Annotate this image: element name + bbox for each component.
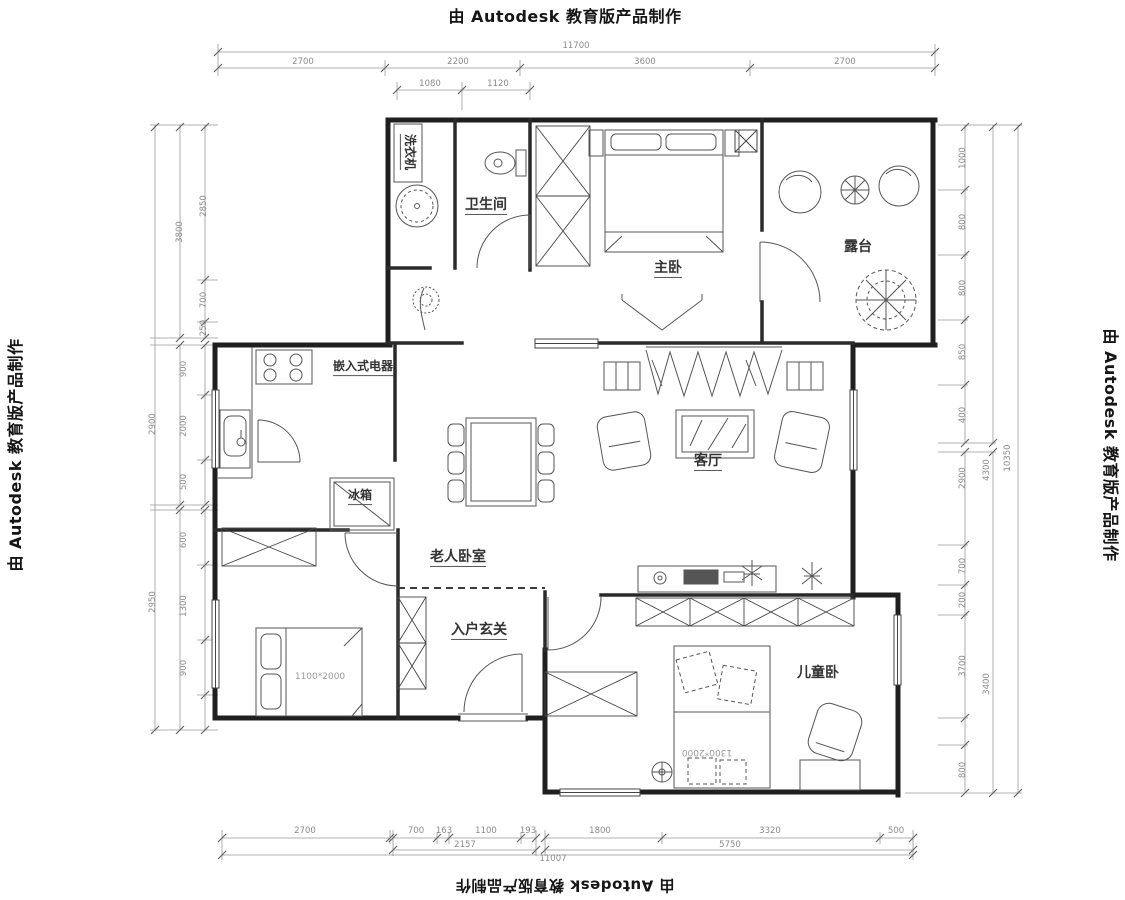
dim-label: 5750 — [719, 840, 741, 850]
living-room-furniture — [448, 347, 831, 592]
dim-label: 250 — [199, 320, 209, 336]
dining-chair — [538, 480, 554, 502]
room-label-fridge: 冰箱 — [348, 489, 372, 505]
floorplan-drawing — [0, 0, 1125, 900]
dim-label: 1000 — [958, 147, 968, 169]
coffee-table — [676, 410, 754, 458]
dim-label: 700 — [958, 558, 968, 574]
bay-mark — [622, 294, 702, 330]
dim-label: 3800 — [175, 221, 185, 243]
armchair — [596, 410, 653, 472]
dim-label: 2900 — [148, 413, 158, 435]
room-label-washer: 洗衣机 — [400, 134, 416, 170]
room-label-terrace: 露台 — [844, 239, 872, 255]
dim-label: 2850 — [199, 195, 209, 217]
dining-chair — [448, 480, 464, 502]
dim-label: 2700 — [834, 57, 856, 67]
nightstand — [589, 130, 603, 156]
round-chair — [779, 171, 821, 213]
room-label-entry: 入户玄关 — [451, 622, 507, 640]
watermark-bottom: 由 Autodesk 教育版产品制作 — [455, 876, 674, 897]
room-label-bathroom: 卫生间 — [465, 197, 507, 215]
plant-icon — [413, 287, 439, 313]
dim-label: 1800 — [589, 826, 611, 836]
room-label-living: 客厅 — [694, 453, 722, 471]
dining-chair — [538, 424, 554, 446]
watermark-top: 由 Autodesk 教育版产品制作 — [448, 3, 681, 27]
watermark-right: 由 Autodesk 教育版产品制作 — [1100, 328, 1124, 561]
dim-label: 4300 — [982, 459, 992, 481]
dim-label: 193 — [520, 826, 536, 836]
pillow — [717, 665, 756, 704]
dim-label: 700 — [199, 292, 209, 308]
room-label-appliance: 嵌入式电器 — [333, 360, 393, 376]
dim-label: 10350 — [1003, 444, 1013, 471]
master-bed — [605, 130, 723, 252]
stove-icon — [256, 350, 312, 384]
dim-label: 400 — [958, 407, 968, 423]
armchair — [773, 410, 832, 475]
dim-label: 3400 — [982, 673, 992, 695]
dim-label: 600 — [179, 532, 189, 548]
dining-chair — [538, 452, 554, 474]
dim-label: 2157 — [454, 840, 476, 850]
pillow — [676, 651, 718, 693]
dining-chair — [448, 452, 464, 474]
dim-label: 1300 — [179, 595, 189, 617]
kids-bed-size-label: 1300*2000 — [682, 747, 732, 757]
dim-label: 2900 — [958, 467, 968, 489]
dining-table — [466, 418, 536, 506]
dim-label: 163 — [436, 826, 452, 836]
dim-label: 2700 — [292, 57, 314, 67]
sofa-drapery — [646, 350, 782, 396]
doors — [345, 215, 820, 721]
dim-label: 900 — [179, 361, 189, 377]
dim-label: 850 — [958, 344, 968, 360]
dim-label: 800 — [958, 214, 968, 230]
dim-label: 1100 — [475, 826, 497, 836]
dim-layer — [150, 44, 1022, 860]
dim-label: 900 — [179, 660, 189, 676]
side-table — [604, 362, 640, 390]
toilet-icon — [485, 152, 515, 174]
elder-bed-size-label: 1100*2000 — [295, 672, 345, 682]
dim-label: 2700 — [294, 826, 316, 836]
master-bedroom-furniture — [589, 130, 739, 330]
dim-label: 2000 — [179, 415, 189, 437]
dim-label: 500 — [179, 474, 189, 490]
desk-chair — [805, 700, 865, 764]
dining-chair — [448, 424, 464, 446]
dim-label: 11700 — [562, 41, 589, 51]
tv-icon — [684, 570, 718, 584]
plant-icon — [802, 562, 822, 590]
room-label-elder: 老人卧室 — [430, 549, 486, 567]
washing-machine-icon — [396, 185, 438, 227]
dim-label: 200 — [958, 592, 968, 608]
room-label-master: 主卧 — [654, 260, 682, 278]
dim-label: 3600 — [634, 57, 656, 67]
dim-label: 11007 — [539, 854, 566, 864]
desk — [800, 760, 860, 790]
dim-label: 700 — [408, 826, 424, 836]
dim-label: 2950 — [148, 591, 158, 613]
pillow — [261, 634, 281, 669]
dim-label: 500 — [888, 826, 904, 836]
dim-label: 3700 — [958, 655, 968, 677]
dim-label: 2200 — [447, 57, 469, 67]
corner-cabinet-swing — [258, 420, 300, 462]
exterior-walls — [215, 120, 935, 795]
plant-icon — [742, 560, 762, 586]
windows — [212, 130, 901, 796]
floorplan-canvas: 由 Autodesk 教育版产品制作 由 Autodesk 教育版产品制作 由 … — [0, 0, 1125, 900]
dim-label: 1080 — [419, 79, 441, 89]
table-plant-icon — [841, 176, 869, 204]
room-label-kids: 儿童卧 — [797, 665, 839, 681]
dim-label: 1120 — [487, 79, 509, 89]
pillow — [666, 134, 716, 150]
watermark-left: 由 Autodesk 教育版产品制作 — [2, 338, 26, 571]
pillow — [611, 134, 661, 150]
dim-label: 800 — [958, 762, 968, 778]
side-table — [787, 362, 823, 390]
dim-label: 800 — [958, 280, 968, 296]
round-chair — [879, 166, 919, 206]
pillow — [261, 674, 281, 709]
dim-label: 3320 — [759, 826, 781, 836]
